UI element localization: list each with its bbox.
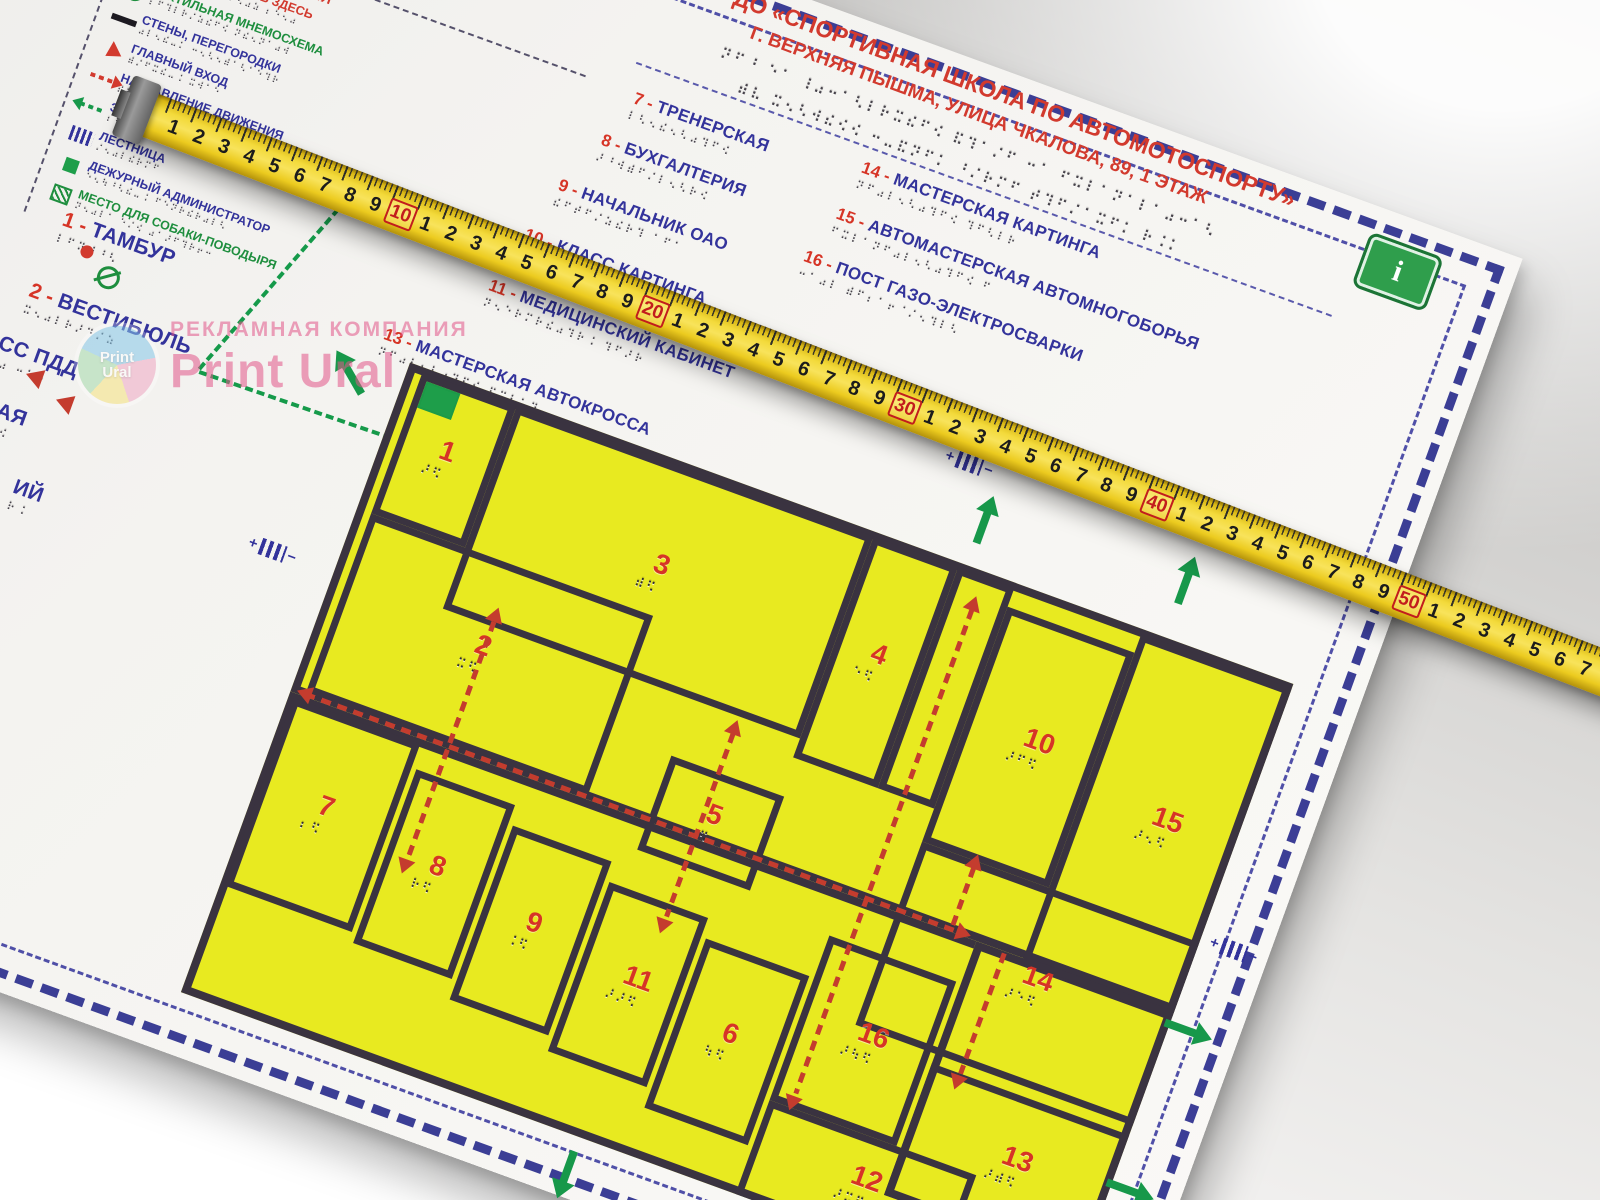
emergency-exit-arrow-icon <box>76 99 109 114</box>
plan-room-number: 1 <box>435 434 461 469</box>
tape-number: 1 <box>164 115 183 140</box>
tape-number: 1 <box>1424 599 1443 624</box>
movement-direction-arrow-icon <box>86 70 119 85</box>
tape-number: 2 <box>1450 609 1469 634</box>
tape-number: 1 <box>1172 502 1191 527</box>
plan-room-number: 6 <box>718 1016 744 1051</box>
tape-number: 5 <box>1021 444 1040 469</box>
tape-number: 7 <box>1071 463 1090 488</box>
tape-number: 4 <box>996 434 1015 459</box>
emergency-exit-arrow-glyph <box>79 101 105 114</box>
tape-number: 7 <box>1576 657 1595 682</box>
tape-number: 7 <box>1324 560 1343 585</box>
admin-square-icon <box>53 153 90 178</box>
tape-number: 6 <box>542 260 561 285</box>
tape-number: 4 <box>1500 628 1519 653</box>
stairs-glyph <box>68 125 96 147</box>
plan-room-number: 4 <box>867 636 893 671</box>
tape-number: 2 <box>945 415 964 440</box>
plan-room-number: 8 <box>425 848 451 883</box>
plan-room-number: 3 <box>649 547 675 582</box>
tape-number: 2 <box>441 222 460 247</box>
tape-number: 3 <box>214 134 233 159</box>
tape-number: 5 <box>265 154 284 179</box>
tape-number: 6 <box>290 164 309 189</box>
stairs-icon <box>63 123 100 149</box>
tape-number: 8 <box>1097 473 1116 498</box>
info-icon-letter: i <box>1388 254 1407 289</box>
tape-number: 7 <box>567 270 586 295</box>
tape-number: 6 <box>1298 551 1317 576</box>
tape-number: 3 <box>719 328 738 353</box>
tape-number: 6 <box>1550 647 1569 672</box>
tactile-mnemoscheme-sign: МАУ ДО «СПОРТИВНАЯ ШКОЛА ПО АВТОМОТОСПОР… <box>0 0 1523 1200</box>
tape-number: 9 <box>618 289 637 314</box>
movement-direction-arrow-glyph <box>90 71 116 84</box>
wall-bar-glyph <box>111 12 137 27</box>
tape-number: 8 <box>1349 570 1368 595</box>
main-entrance-arrow-icon <box>95 36 132 62</box>
tape-number: 2 <box>1198 512 1217 537</box>
tape-number: 9 <box>1122 483 1141 508</box>
tape-number: 3 <box>1223 522 1242 547</box>
tape-number: 3 <box>467 231 486 256</box>
plan-room-number: 7 <box>314 789 340 824</box>
tape-number: 9 <box>1374 580 1393 605</box>
tape-number: 9 <box>366 193 385 218</box>
tape-number: 1 <box>416 212 435 237</box>
tape-number: 7 <box>819 367 838 392</box>
tape-number: 2 <box>693 318 712 343</box>
guide-dog-area-glyph <box>49 183 73 205</box>
wall-bar-icon <box>107 11 141 28</box>
main-entrance-arrow-glyph <box>105 41 122 57</box>
tape-number: 4 <box>1248 531 1267 556</box>
tape-number: 6 <box>794 357 813 382</box>
plan-room-number: 9 <box>522 905 548 940</box>
tape-number: 4 <box>240 144 259 169</box>
tape-number: 8 <box>340 183 359 208</box>
tape-number: 6 <box>1046 454 1065 479</box>
tape-number: 1 <box>920 405 939 430</box>
tape-number: 5 <box>1273 541 1292 566</box>
tape-number: 4 <box>744 338 763 363</box>
tape-number: 3 <box>971 425 990 450</box>
tape-number: 2 <box>189 125 208 150</box>
photo-scene: МАУ ДО «СПОРТИВНАЯ ШКОЛА ПО АВТОМОТОСПОР… <box>0 0 1600 1200</box>
tape-number: 5 <box>769 347 788 372</box>
tape-number: 5 <box>517 251 536 276</box>
tape-number: 4 <box>492 241 511 266</box>
minus-sign: − <box>1246 948 1260 967</box>
tape-number: 8 <box>593 280 612 305</box>
admin-square-glyph <box>62 156 80 174</box>
tape-number: 8 <box>845 376 864 401</box>
guide-dog-area-icon <box>42 181 80 209</box>
tape-number: 3 <box>1475 618 1494 643</box>
tape-number: 1 <box>668 309 687 334</box>
tape-number: 5 <box>1525 638 1544 663</box>
tape-number: 7 <box>315 173 334 198</box>
tape-number: 9 <box>870 386 889 411</box>
